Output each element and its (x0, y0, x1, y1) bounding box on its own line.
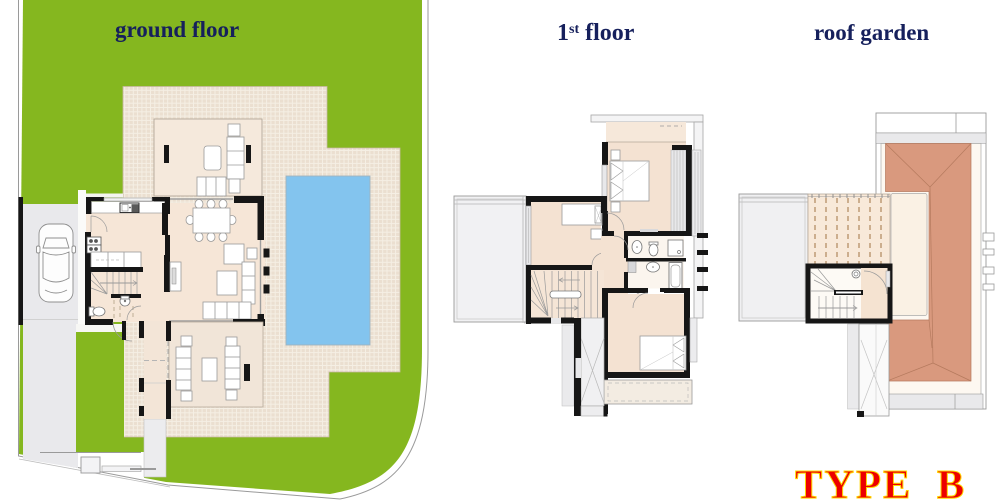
svg-text:ground floor: ground floor (115, 17, 239, 42)
svg-text:1st floor: 1st floor (557, 20, 635, 46)
svg-text:roof garden: roof garden (814, 20, 929, 45)
svg-text:TYPE B: TYPE B (795, 461, 966, 500)
